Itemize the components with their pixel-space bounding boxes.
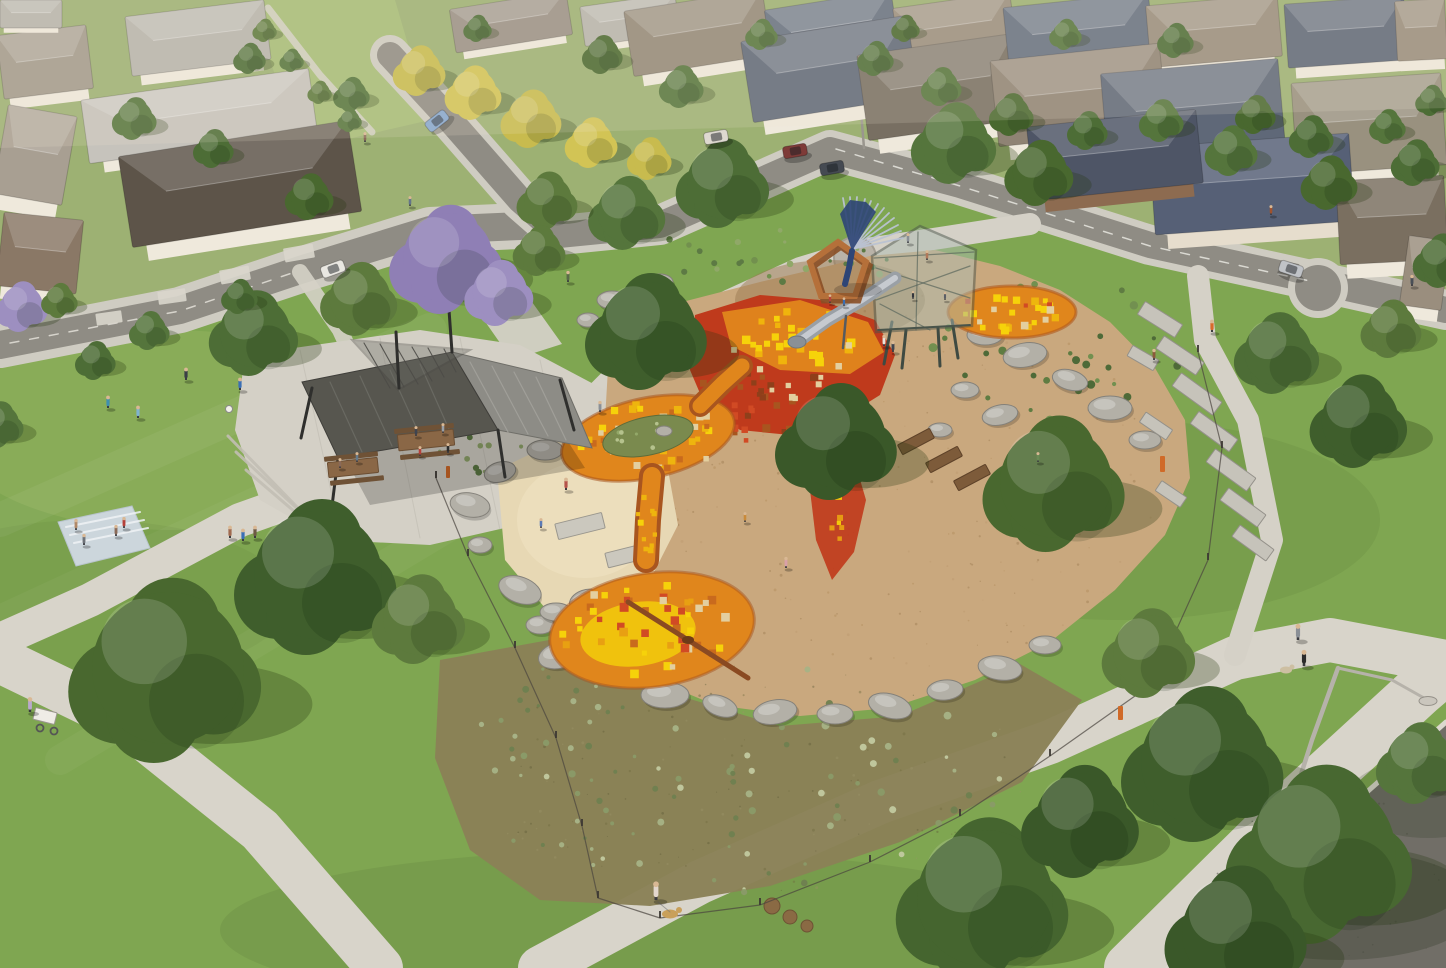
soil-texture: [660, 853, 662, 855]
mulch-texture: [779, 563, 782, 566]
lava-pixels: [977, 319, 982, 324]
shrub: [714, 266, 719, 271]
mulch-texture: [907, 380, 909, 382]
mulch-texture: [780, 574, 783, 577]
mulch-texture: [1130, 474, 1132, 476]
grass-tuft: [544, 774, 550, 780]
lava-pixels: [1043, 298, 1048, 303]
tree-lit-side: [796, 396, 850, 450]
tree-lit-side: [522, 231, 545, 254]
mulch-texture: [719, 463, 721, 465]
tree-lit-side: [1326, 385, 1369, 428]
lava-pixels: [749, 408, 754, 413]
grass-tuft: [992, 732, 997, 737]
lava-pixels: [1002, 296, 1008, 302]
rock-highlight: [530, 618, 544, 626]
soil-texture: [539, 810, 542, 813]
grass-tuft: [512, 734, 517, 739]
lava-pixels: [1024, 303, 1028, 307]
lava-pixels: [750, 342, 756, 348]
person-shadow: [239, 390, 248, 394]
person-head: [253, 526, 257, 530]
lava-pixels: [678, 608, 685, 615]
soil-texture: [658, 862, 660, 864]
grass-tuft: [893, 758, 899, 764]
soil-texture: [836, 756, 839, 759]
tree-lit-side: [1016, 147, 1047, 178]
lava-pixels: [774, 402, 781, 409]
tree-lit-side: [293, 178, 315, 200]
mulch-texture: [963, 611, 965, 613]
grass-tuft: [804, 666, 810, 672]
soil-texture: [921, 829, 923, 831]
lava-pixels: [1013, 297, 1020, 304]
lava-pixels: [818, 375, 823, 380]
mulch-texture: [952, 578, 954, 580]
mulch-texture: [988, 439, 990, 441]
soil-texture: [705, 821, 707, 823]
slide-mouth: [788, 336, 806, 348]
mulch-texture: [943, 351, 945, 353]
mulch-texture: [1031, 579, 1033, 581]
grass-tuft: [801, 880, 808, 887]
soil-texture: [529, 766, 532, 769]
mulch-texture: [1005, 623, 1006, 624]
grass-tuft: [600, 856, 605, 861]
grass-tuft: [899, 851, 905, 857]
soil-texture: [741, 745, 743, 747]
soil-texture: [936, 831, 938, 833]
lava-pixels: [778, 356, 787, 365]
mulch-texture: [899, 613, 901, 615]
soil-texture: [701, 809, 704, 812]
mulch-texture: [956, 471, 959, 474]
mulch-texture: [778, 489, 779, 490]
person-shadow: [254, 538, 263, 542]
shrub: [1072, 356, 1080, 364]
soil-texture: [857, 779, 859, 781]
soil-texture: [1012, 788, 1013, 789]
mulch-texture: [769, 570, 771, 572]
lava-pixels: [703, 600, 709, 606]
rock-highlight: [822, 707, 840, 716]
grass-tuft: [672, 795, 676, 799]
grass-tuft: [749, 768, 755, 774]
mulch-texture: [916, 356, 918, 358]
soil-texture: [721, 813, 724, 816]
lava-pixels: [1047, 306, 1055, 314]
grass-tuft: [499, 718, 504, 723]
mulch-texture: [836, 613, 838, 615]
soil-texture: [859, 691, 862, 694]
shrub: [736, 261, 742, 267]
person-head: [912, 291, 914, 293]
soil-texture: [548, 824, 550, 826]
lava-pixels: [993, 294, 1001, 302]
soil-texture: [522, 837, 524, 839]
mulch-texture: [928, 665, 930, 667]
soil-texture: [1020, 791, 1022, 793]
grass-tuft: [877, 788, 884, 795]
tree-lit-side: [527, 178, 554, 205]
lava-pixels: [1031, 297, 1039, 305]
grass-tuft: [568, 745, 574, 751]
lava-pixels: [677, 456, 683, 462]
lava-pixels: [837, 521, 841, 525]
shrub: [1119, 287, 1125, 293]
soil-texture: [554, 856, 557, 859]
mulch-texture: [1134, 418, 1136, 420]
person-shadow: [654, 899, 668, 904]
tree-lit-side: [262, 517, 334, 589]
lava-pixels: [563, 641, 570, 648]
lava-pixels: [809, 351, 817, 359]
mulch-texture: [681, 540, 684, 543]
mulch-texture: [985, 369, 986, 370]
mulch-texture: [687, 509, 689, 511]
tree-lit-side: [1391, 731, 1429, 769]
beam-pivot: [682, 636, 694, 644]
mulch-texture: [721, 461, 724, 464]
soil-texture: [954, 816, 955, 817]
grass-tuft: [729, 831, 735, 837]
grass-tuft: [712, 878, 716, 882]
person-head: [843, 297, 846, 300]
shrub: [783, 240, 786, 243]
person-shadow: [785, 568, 793, 571]
tree-lit-side: [1249, 321, 1287, 359]
person-shadow: [540, 529, 547, 532]
mulch-texture: [777, 472, 780, 475]
soil-texture: [858, 833, 859, 834]
person-shadow: [1302, 666, 1314, 671]
person-head: [539, 518, 542, 521]
person-head: [106, 396, 110, 400]
mulch-texture: [922, 345, 924, 347]
grass-tuft: [990, 802, 996, 808]
grass-tuft: [521, 752, 528, 759]
shrub: [1152, 336, 1156, 340]
person-shadow: [744, 523, 751, 526]
mulch-texture: [970, 563, 972, 565]
lava-pixels: [846, 342, 852, 348]
soil-texture: [524, 831, 527, 834]
lava-pixels: [630, 640, 638, 648]
soil-texture: [567, 846, 568, 847]
island-tuft: [635, 432, 638, 435]
mulch-texture: [1025, 642, 1028, 645]
lava-pixels: [1009, 310, 1015, 316]
person-head: [784, 557, 787, 560]
grass-tuft: [746, 790, 753, 797]
soil-texture: [916, 858, 917, 859]
soil-texture: [698, 694, 701, 697]
lava-pixels: [741, 426, 747, 432]
lava-pixels: [653, 532, 657, 536]
soil-texture: [728, 789, 729, 790]
soil-texture: [629, 770, 631, 772]
soil-texture: [581, 741, 584, 744]
mulch-texture: [713, 466, 716, 469]
soil-texture: [744, 739, 745, 740]
soil-texture: [607, 793, 609, 795]
mulch-texture: [979, 535, 981, 537]
mulch-texture: [919, 611, 920, 612]
mulch-texture: [1000, 561, 1001, 562]
tree-lit-side: [1399, 144, 1421, 166]
shrub: [1068, 351, 1072, 355]
tree-lit-side: [1258, 785, 1341, 868]
dog-head: [676, 907, 682, 913]
bollard: [1118, 706, 1123, 720]
person-head: [114, 525, 117, 528]
lava-pixels: [811, 374, 818, 381]
person-shadow: [912, 300, 918, 302]
mulch-texture: [1088, 547, 1089, 548]
mulch-texture: [711, 464, 713, 466]
grass-tuft: [741, 889, 747, 895]
person-shadow: [364, 143, 371, 146]
shrub: [1105, 365, 1111, 371]
mulch-texture: [947, 448, 949, 450]
person-head: [338, 458, 341, 461]
soil-texture: [951, 834, 952, 835]
person-head: [564, 478, 568, 482]
mulch-texture: [1016, 542, 1019, 545]
mulch-texture: [810, 639, 812, 641]
soil-texture: [764, 868, 767, 871]
lava-pixels: [738, 384, 744, 390]
mulch-texture: [692, 511, 694, 513]
shrub: [1029, 408, 1033, 412]
tree-lit-side: [47, 287, 63, 303]
person-shadow: [1296, 640, 1308, 645]
lava-pixels: [837, 536, 841, 540]
grass-tuft: [510, 756, 516, 762]
grass-tuft: [610, 821, 614, 825]
mulch-texture: [893, 657, 894, 658]
lava-pixels: [643, 547, 648, 552]
soil-texture: [587, 794, 588, 795]
mulch-texture: [847, 633, 850, 636]
tower-legs: [938, 328, 940, 366]
grass-tuft: [730, 779, 736, 785]
mulch-texture: [1060, 571, 1061, 572]
mulch-texture: [1037, 559, 1039, 561]
person-head: [414, 426, 417, 429]
mulch-texture: [907, 340, 909, 342]
lava-pixels: [619, 628, 628, 637]
tree-lit-side: [1007, 431, 1070, 494]
person-head: [184, 368, 188, 372]
mulch-texture: [908, 551, 910, 553]
lava-pixels: [670, 664, 675, 669]
grass-tuft: [944, 712, 952, 720]
soil-texture: [753, 792, 754, 793]
lava-pixels: [642, 537, 646, 541]
mulch-texture: [763, 632, 766, 635]
tree-lit-side: [136, 315, 154, 333]
person-head: [441, 423, 444, 426]
lava-pixels: [684, 599, 690, 605]
mulch-texture: [977, 645, 978, 646]
soil-texture: [852, 774, 855, 777]
person-head: [28, 697, 33, 702]
lava-pixels: [601, 592, 607, 598]
lava-pixels: [671, 616, 679, 624]
lava-pixels: [611, 407, 618, 414]
lava-pixels: [668, 457, 676, 465]
lava-pixels: [991, 307, 997, 313]
shrub: [787, 261, 794, 268]
rock-highlight: [1133, 433, 1149, 441]
person-head: [122, 517, 125, 520]
person-shadow: [926, 261, 933, 264]
lava-pixels: [788, 325, 795, 332]
soil-texture: [625, 798, 627, 800]
mulch-texture: [1068, 342, 1071, 345]
soil-texture: [571, 727, 573, 729]
person-head: [743, 512, 746, 515]
lava-pixels: [577, 626, 582, 631]
person-shadow: [28, 712, 39, 716]
lava-pixels: [760, 375, 765, 380]
lava-pixels: [650, 509, 654, 513]
soil-texture: [917, 829, 919, 831]
mulch-texture: [1023, 625, 1024, 626]
person-head: [925, 250, 928, 253]
island-tuft: [650, 445, 655, 450]
shrub: [862, 249, 866, 253]
lava-pixels: [695, 437, 700, 442]
tree-lit-side: [4, 287, 27, 310]
grass-tuft: [522, 686, 529, 693]
tree-lit-side: [1214, 131, 1237, 154]
shrub: [828, 259, 831, 262]
grass-tuft: [889, 806, 896, 813]
person-shadow: [829, 304, 835, 307]
soil-texture: [562, 744, 564, 746]
mulch-texture: [700, 541, 702, 543]
lava-pixels: [756, 345, 762, 351]
mulch-texture: [897, 489, 898, 490]
grass-tuft: [509, 746, 514, 751]
lava-pixels: [704, 424, 709, 429]
grass-tuft: [517, 697, 523, 703]
shrub: [1088, 354, 1093, 359]
mulch-texture: [1007, 641, 1009, 643]
lava-pixels: [597, 617, 602, 622]
grass-tuft: [568, 770, 575, 777]
lava-pixels: [770, 388, 775, 393]
mulch-texture: [785, 597, 787, 599]
soil-texture: [536, 828, 538, 830]
soil-texture: [601, 866, 602, 867]
lava-pixels: [641, 495, 646, 500]
lava-pixels: [663, 582, 671, 590]
lava-pixels: [664, 465, 670, 471]
soil-texture: [668, 794, 669, 795]
soil-texture: [740, 808, 742, 810]
lava-pixels: [590, 591, 598, 599]
lava-pixels: [650, 543, 654, 547]
soil-texture: [572, 821, 573, 822]
mulch-texture: [976, 521, 978, 523]
mulch-texture: [1086, 589, 1089, 592]
soil-texture: [851, 780, 852, 781]
person-shadow: [137, 418, 146, 422]
grass-tuft: [525, 708, 530, 713]
mulch-texture: [774, 588, 777, 591]
grass-tuft: [636, 860, 643, 867]
person-head: [1296, 624, 1301, 629]
rock-highlight: [1094, 399, 1116, 410]
lava-pixels: [774, 316, 780, 322]
grass-tuft: [541, 668, 544, 671]
lava-pixels: [757, 366, 763, 372]
soil-texture: [671, 716, 674, 719]
grass-tuft: [543, 740, 549, 746]
person-shadow: [1211, 332, 1220, 336]
soil-texture: [678, 857, 679, 858]
soil-texture: [565, 839, 567, 841]
soil-texture: [685, 720, 687, 722]
soil-texture: [742, 711, 744, 713]
mulch-texture: [906, 343, 907, 344]
tree-lit-side: [1371, 306, 1398, 333]
shrub: [1097, 333, 1103, 339]
person-shadow: [442, 434, 449, 437]
tree-lit-side: [1297, 120, 1317, 140]
grass-tuft: [573, 688, 579, 694]
grass-tuft: [546, 675, 550, 679]
tree-lit-side: [1118, 618, 1159, 659]
grass-tuft: [784, 742, 790, 748]
grass-tuft: [621, 705, 625, 709]
person-head: [418, 446, 421, 449]
soil-texture: [808, 743, 811, 746]
person-shadow: [565, 490, 574, 494]
grass-tuft: [479, 722, 484, 727]
soil-texture: [716, 792, 717, 793]
grass-tuft: [733, 815, 738, 820]
grass-tuft: [728, 845, 731, 848]
person-shadow: [419, 457, 426, 460]
mulch-texture: [1005, 341, 1008, 344]
shrub: [942, 336, 947, 341]
person-shadow: [907, 244, 914, 247]
mulch-texture: [1014, 593, 1015, 594]
grass-tuft: [767, 871, 771, 875]
soil-texture: [666, 863, 668, 865]
person-head: [136, 406, 140, 410]
mulch-texture: [985, 521, 987, 523]
grass-tuft: [585, 743, 592, 750]
soil-texture: [739, 806, 741, 808]
grass-tuft: [631, 832, 634, 835]
mulch-texture: [926, 643, 927, 644]
rock-highlight: [955, 384, 969, 391]
person-shadow: [599, 412, 607, 415]
tree-lit-side: [388, 584, 429, 625]
soil-texture: [530, 823, 532, 825]
lava-pixels: [751, 380, 756, 385]
mulch-texture: [861, 624, 863, 626]
lava-pixels: [757, 392, 762, 397]
grass-tuft: [492, 767, 498, 773]
mulch-texture: [905, 662, 907, 664]
mulch-texture: [904, 425, 905, 426]
